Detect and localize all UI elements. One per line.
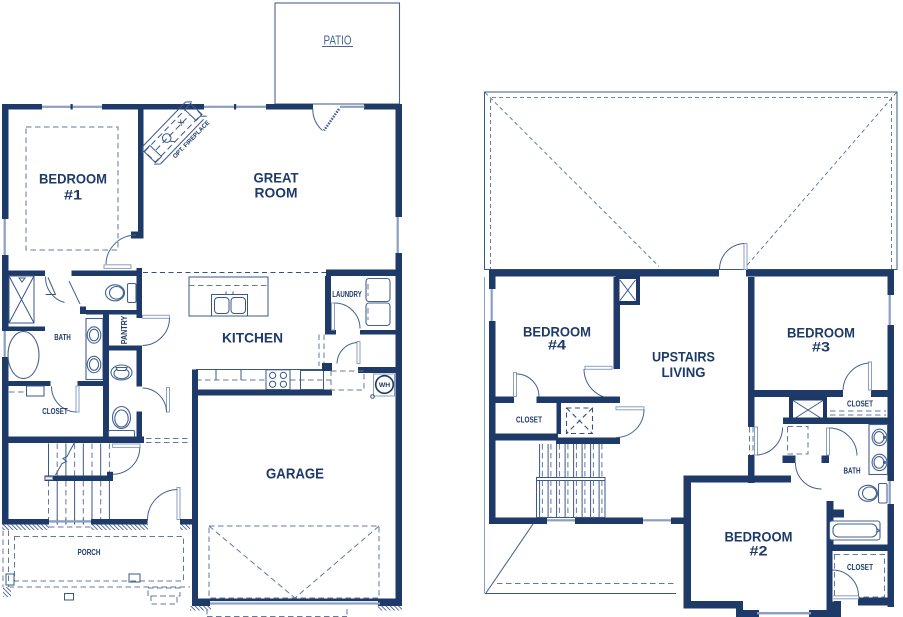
svg-text:#3: #3	[812, 340, 831, 355]
svg-text:#1: #1	[64, 188, 83, 203]
svg-text:CLOSET: CLOSET	[516, 416, 542, 425]
svg-text:CLOSET: CLOSET	[847, 400, 873, 409]
svg-text:PANTRY: PANTRY	[120, 315, 129, 344]
svg-text:PATIO: PATIO	[324, 33, 352, 48]
svg-text:CLOSET: CLOSET	[847, 563, 873, 572]
svg-text:BEDROOM: BEDROOM	[39, 172, 107, 187]
svg-text:BEDROOM: BEDROOM	[787, 326, 855, 341]
svg-text:WH: WH	[379, 382, 390, 389]
svg-text:BEDROOM: BEDROOM	[725, 530, 793, 545]
svg-text:UPSTAIRS: UPSTAIRS	[652, 350, 715, 365]
svg-text:GARAGE: GARAGE	[266, 466, 324, 483]
svg-text:GREAT: GREAT	[254, 171, 300, 186]
svg-text:#2: #2	[750, 544, 769, 559]
svg-text:CLOSET: CLOSET	[42, 407, 68, 416]
svg-text:LAUNDRY: LAUNDRY	[332, 290, 362, 299]
svg-text:BATH: BATH	[54, 333, 71, 342]
svg-text:LIVING: LIVING	[662, 365, 706, 380]
svg-text:#4: #4	[548, 338, 567, 353]
svg-text:KITCHEN: KITCHEN	[222, 331, 283, 346]
svg-text:BATH: BATH	[844, 467, 861, 476]
svg-text:PORCH: PORCH	[78, 548, 101, 557]
svg-text:ROOM: ROOM	[255, 186, 298, 201]
